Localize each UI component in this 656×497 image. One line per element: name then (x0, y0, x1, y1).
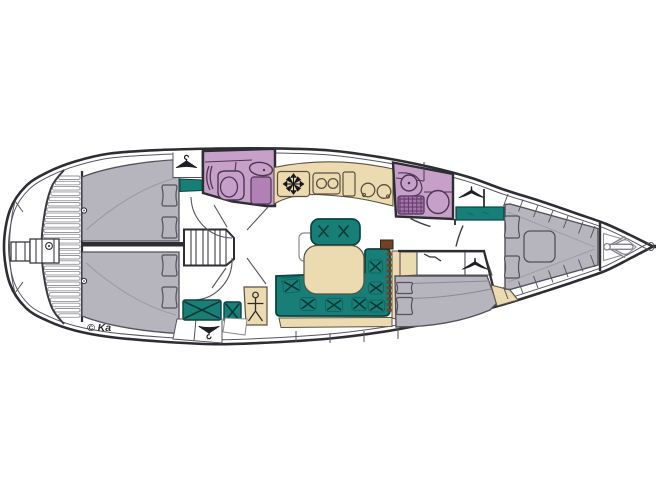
svg-text:© Kа: © Kа (87, 322, 111, 334)
